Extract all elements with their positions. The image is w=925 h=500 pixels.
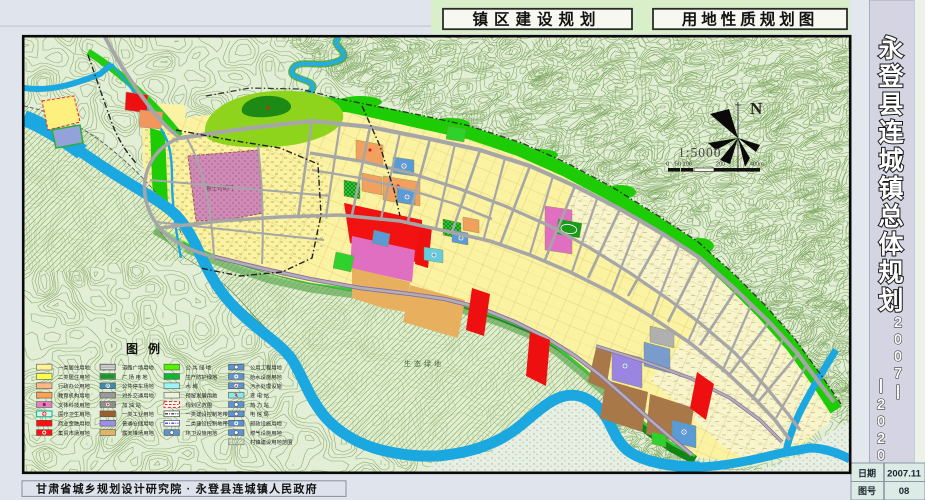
svg-text:图号: 图号 <box>858 486 876 496</box>
svg-text:镇区建设规划: 镇区建设规划 <box>472 10 601 29</box>
svg-text:0: 0 <box>877 447 885 464</box>
svg-text:一类居住用地: 一类居住用地 <box>58 363 90 371</box>
svg-text:0: 0 <box>894 331 902 348</box>
svg-text:县: 县 <box>878 91 903 119</box>
svg-text:一类工业用地: 一类工业用地 <box>122 410 154 418</box>
svg-text:P: P <box>106 383 109 388</box>
svg-text:规划区范围: 规划区范围 <box>186 401 213 409</box>
svg-text:对外交通用地: 对外交通用地 <box>122 391 154 399</box>
svg-text:200: 200 <box>716 162 725 168</box>
svg-text:环卫设施用地: 环卫设施用地 <box>186 429 218 437</box>
svg-text:日期: 日期 <box>858 468 876 479</box>
svg-text:教育机构用地: 教育机构用地 <box>58 391 90 399</box>
svg-text:文体科技用地: 文体科技用地 <box>58 401 90 409</box>
svg-text:甘肃省城乡规划设计研究院 · 永登县连城镇人民政府: 甘肃省城乡规划设计研究院 · 永登县连城镇人民政府 <box>36 482 318 496</box>
svg-text:城: 城 <box>878 147 903 175</box>
svg-text:邮政设施用地: 邮政设施用地 <box>250 420 282 428</box>
svg-text:污水处理设施: 污水处理设施 <box>250 382 282 390</box>
svg-text:2007.11: 2007.11 <box>887 469 922 480</box>
svg-text:变 电 站: 变 电 站 <box>250 391 270 399</box>
svg-text:村镇建设用地范围: 村镇建设用地范围 <box>250 438 292 446</box>
svg-text:划: 划 <box>878 287 903 315</box>
svg-text:2: 2 <box>877 396 885 413</box>
svg-text:生产防护绿地: 生产防护绿地 <box>186 373 218 381</box>
svg-text:|: | <box>879 377 883 394</box>
svg-text:热 力 站: 热 力 站 <box>250 401 270 409</box>
svg-text:用地性质规划图: 用地性质规划图 <box>682 10 819 29</box>
svg-text:|: | <box>896 383 900 400</box>
svg-text:公 共 绿 地: 公 共 绿 地 <box>186 363 212 371</box>
svg-text:给水设施用地: 给水设施用地 <box>250 373 282 381</box>
svg-text:N: N <box>750 99 763 118</box>
svg-text:图例: 图例 <box>126 341 170 356</box>
svg-text:400m: 400m <box>750 162 764 168</box>
svg-text:2: 2 <box>894 314 902 331</box>
svg-text:电 信 局: 电 信 局 <box>250 410 269 418</box>
svg-text:行政办公用地: 行政办公用地 <box>58 382 90 390</box>
svg-text:一类建设控制地带: 一类建设控制地带 <box>186 410 229 418</box>
svg-text:7: 7 <box>894 365 902 382</box>
svg-text:08: 08 <box>899 486 910 497</box>
svg-text:商业金融用地: 商业金融用地 <box>58 420 90 428</box>
svg-text:道路广场用地: 道路广场用地 <box>122 363 154 371</box>
svg-text:50 100: 50 100 <box>675 162 692 168</box>
svg-text:预留发展用地: 预留发展用地 <box>186 391 218 399</box>
svg-text:体: 体 <box>878 231 904 259</box>
svg-text:燃气设施用地: 燃气设施用地 <box>250 429 282 437</box>
svg-text:1:5000: 1:5000 <box>678 145 722 160</box>
svg-text:普通仓储用地: 普通仓储用地 <box>122 420 154 428</box>
svg-text:0: 0 <box>666 162 669 168</box>
svg-text:二类居住用地: 二类居住用地 <box>58 373 90 381</box>
svg-text:医疗卫生用地: 医疗卫生用地 <box>58 410 90 418</box>
svg-text:连: 连 <box>878 119 904 147</box>
svg-text:规: 规 <box>878 259 903 287</box>
svg-text:公用工程用地: 公用工程用地 <box>250 363 282 371</box>
svg-text:露天堆场用地: 露天堆场用地 <box>122 429 154 437</box>
svg-text:公共停车场地: 公共停车场地 <box>122 382 154 390</box>
svg-text:加 油 站: 加 油 站 <box>122 401 142 409</box>
svg-text:0: 0 <box>877 413 885 430</box>
svg-text:登: 登 <box>877 62 904 91</box>
svg-text:水 域: 水 域 <box>186 382 199 390</box>
svg-text:0: 0 <box>894 348 902 365</box>
svg-text:镇: 镇 <box>878 175 903 203</box>
svg-text:广 场 用 地: 广 场 用 地 <box>122 373 148 381</box>
svg-text:2: 2 <box>877 430 885 447</box>
svg-text:永: 永 <box>878 35 903 63</box>
svg-text:集贸市场用地: 集贸市场用地 <box>58 429 90 437</box>
svg-text:总: 总 <box>878 203 903 231</box>
svg-text:二类建设控制地带: 二类建设控制地带 <box>186 420 229 428</box>
svg-text:生态绿地: 生态绿地 <box>404 359 444 368</box>
